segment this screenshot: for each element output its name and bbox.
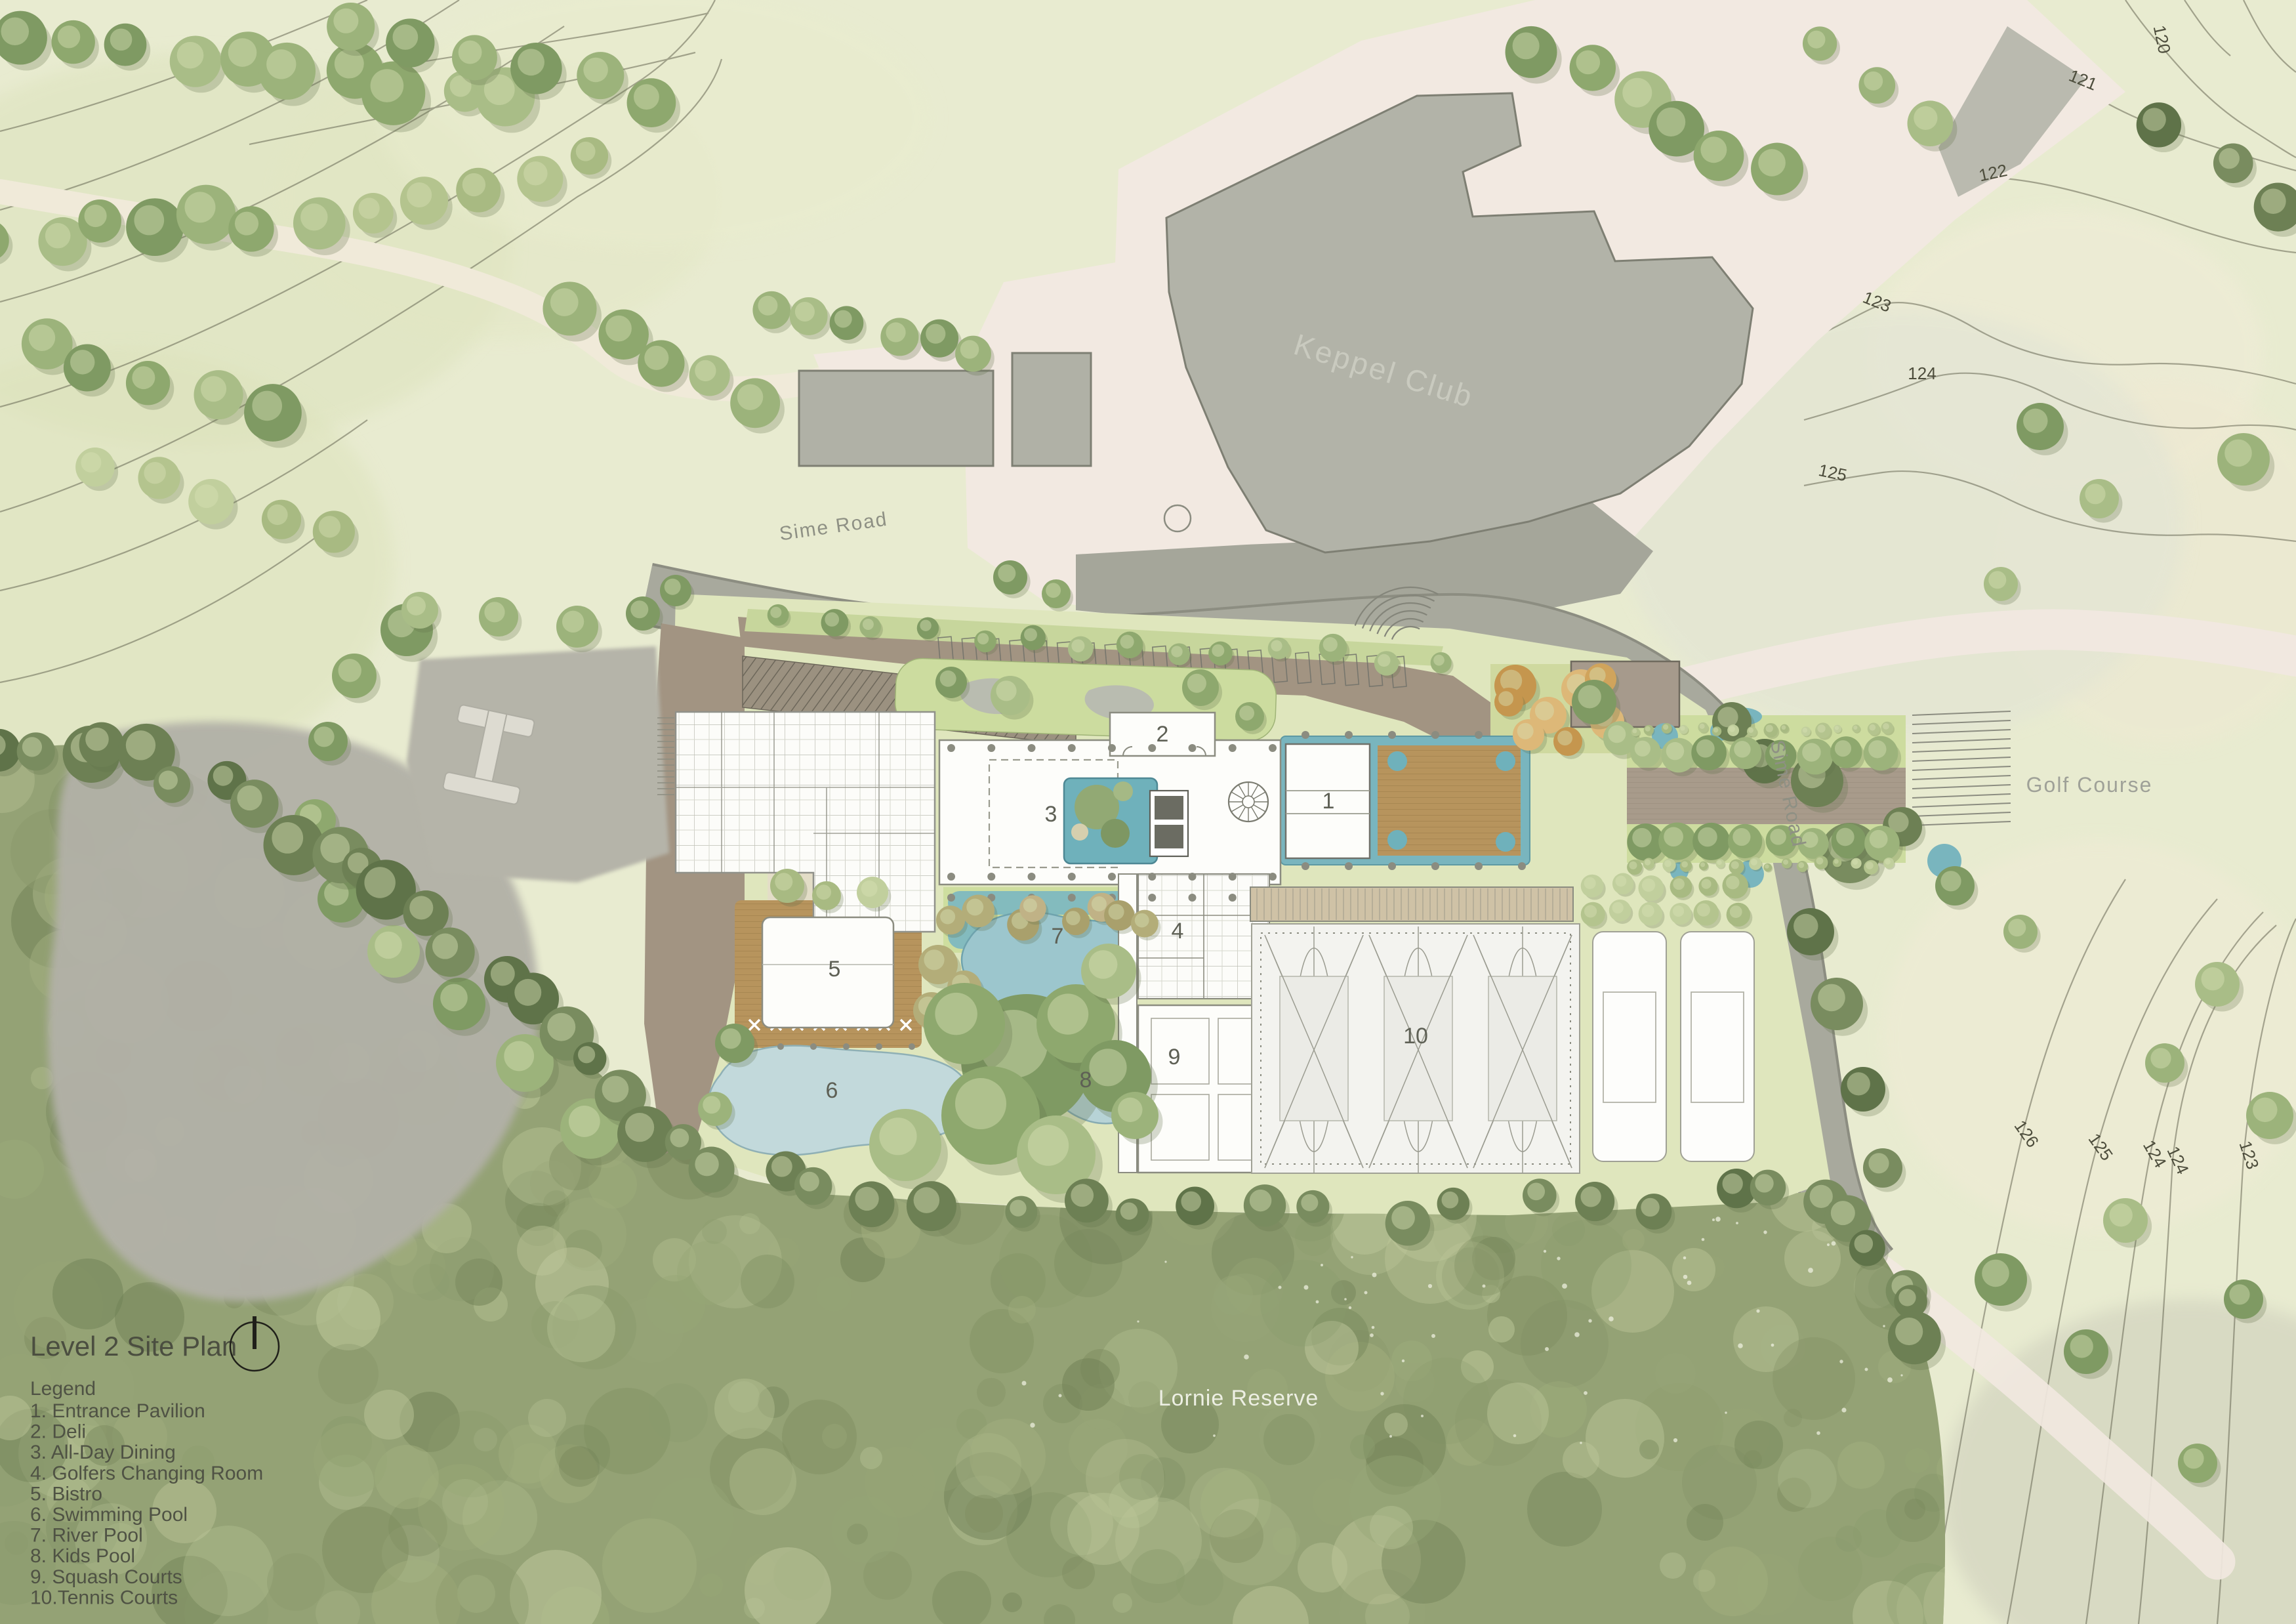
- legend-item-8: 8. Kids Pool: [30, 1545, 135, 1567]
- spiral-stair: [1229, 782, 1268, 822]
- keppel-annex-slab: [1012, 353, 1091, 466]
- plan-number-5: 5: [829, 957, 841, 982]
- pond-court: [1064, 778, 1157, 864]
- legend-item-5: 5. Bistro: [30, 1483, 102, 1505]
- legend-item-4: 4. Golfers Changing Room: [30, 1463, 263, 1484]
- lift-core: [1150, 791, 1188, 856]
- legend-item-7: 7. River Pool: [30, 1525, 143, 1547]
- plan-number-7: 7: [1052, 924, 1064, 949]
- plan-number-10: 10: [1403, 1024, 1428, 1049]
- map-label-lornie-reserve: Lornie Reserve: [1158, 1386, 1319, 1411]
- legend-heading: Legend: [30, 1378, 96, 1400]
- legend-item-3: 3. All-Day Dining: [30, 1442, 176, 1463]
- plan-number-9: 9: [1168, 1045, 1181, 1070]
- tennis-pergola: [1250, 887, 1573, 921]
- map-label-golf-course: Golf Course: [2026, 773, 2153, 797]
- site-plan-canvas: Keppel ClubSime RoadSime RoadGolf Course…: [0, 0, 2296, 1624]
- plan-number-2: 2: [1157, 722, 1169, 747]
- legend-item-1: 1. Entrance Pavilion: [30, 1400, 205, 1422]
- legend-item-9: 9. Squash Courts: [30, 1566, 182, 1588]
- plan-number-4: 4: [1172, 919, 1184, 944]
- plan-number-3: 3: [1045, 802, 1057, 827]
- keppel-annex-building: [799, 371, 993, 466]
- plan-number-6: 6: [826, 1078, 838, 1103]
- contour-label-4: 124: [1908, 364, 1936, 383]
- plan-number-1: 1: [1322, 789, 1335, 814]
- legend-item-10: 10.Tennis Courts: [30, 1587, 178, 1608]
- page-title: Level 2 Site Plan: [30, 1331, 237, 1362]
- legend-item-6: 6. Swimming Pool: [30, 1504, 188, 1526]
- plan-number-8: 8: [1080, 1068, 1092, 1093]
- legend-item-2: 2. Deli: [30, 1421, 86, 1443]
- helipad-pad: [407, 646, 669, 883]
